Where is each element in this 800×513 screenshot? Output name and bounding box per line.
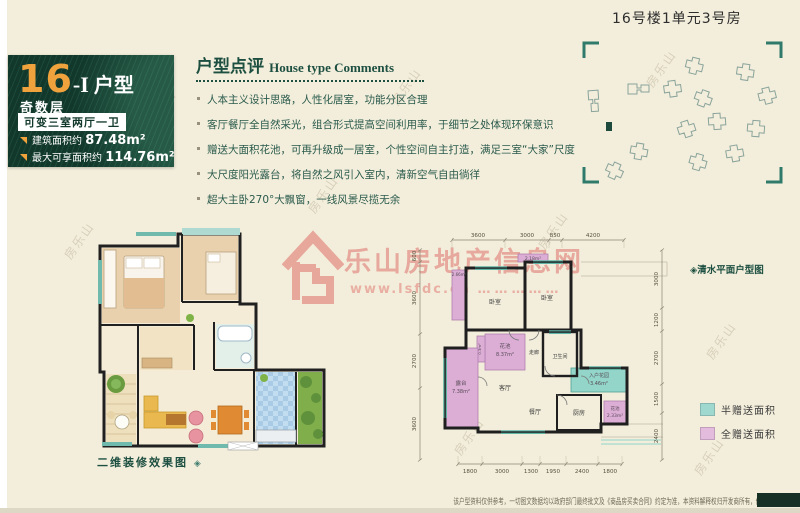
flower-large-name: 花池 [499,342,511,350]
comments-title-cn: 户型点评 [196,57,264,77]
comments-list: 人本主义设计思路，人性化居室，功能分区合理 客厅餐厅全自然采光，组合形式提高空间… [196,92,541,207]
crop-corner-brackets [584,43,781,182]
triangle-bullet-icon [20,137,27,144]
footer-brand-block [757,493,800,507]
built-area-line: 建筑面积约 87.48m² [20,132,146,148]
comments-title-en: House type Comments [269,60,394,75]
dim-bottom: 1950 [546,469,561,475]
dim-left: 2700 [412,353,418,368]
entry-garden-area: 3.46m² [590,381,608,387]
dim-bottom: 2400 [575,469,590,475]
dim-top: 4200 [586,233,601,239]
neighbor-window-band [601,440,661,444]
decor-floor-plan [78,226,338,452]
unit-suffix: -I [73,72,89,97]
built-area-label: 建筑面积约 [32,136,82,147]
full-gift-swatch [700,427,715,440]
bedroom1-label: 卧室 [489,298,501,306]
half-gift-swatch [700,403,715,416]
highlighted-building [606,122,612,131]
comment-item: 大尺度阳光露台，将自然之风引入室内，清新空气自由徜徉 [196,167,541,182]
decor-caption-text: 二维装修效果图 [97,456,188,469]
unit-type-word: 户型 [94,73,134,97]
dim-bottom: 1800 [463,469,478,475]
max-area-label: 最大可享面积约 [32,153,102,164]
measured-floor-plan: 卧室 卧室 客厅 餐厅 卫生间 走廊 厨房 花池 8.37m² 露台 7.38m… [405,218,670,494]
tile-watermark: 房乐山 [702,318,740,362]
dim-bottom: 3000 [495,469,510,475]
strip-tiny-area: 0.3m² [477,343,482,355]
living-label: 客厅 [499,384,511,392]
unit-number: 16 [18,57,73,101]
dim-left: 3600 [412,290,418,305]
dim-left: 3600 [412,416,418,431]
dim-bottom: 1300 [524,469,539,475]
dim-bottom: 1800 [603,469,618,475]
decor-balcony-band [182,228,240,235]
bedroom2-label: 卧室 [541,294,553,302]
decor-plan-caption: 二维装修效果图 ◈ [97,454,203,470]
dim-right: 3000 [654,271,660,286]
footer-disclaimer: 该户型资料仅供参考，一切图文数据均以政府部门最终批文及《商品房买卖合同》约定为准… [453,496,753,507]
site-plan-buildings [588,56,777,182]
full-gift-areas [445,254,627,428]
dining-label: 餐厅 [529,408,541,416]
entry-garden-name: 入户花园 [589,372,609,379]
flower-large-area: 8.37m² [496,352,514,358]
bare-plan-note: ◈清水平面户型图 [690,262,764,276]
comments-title: 户型点评 House type Comments [196,52,424,82]
dim-top: 3000 [520,233,535,239]
flyer-page: 房乐山 房乐山 房乐山 房乐山 房乐山 房乐山 房乐山 房乐山 房乐山 房乐山 … [0,0,800,513]
terrace-name: 露台 [455,379,467,387]
flower-small-area: 2.33m² [607,413,623,419]
dim-left: 600 [412,250,418,261]
dim-right: 1200 [654,312,660,327]
half-gift-entry-garden [571,368,627,392]
comment-item: 赠送大面积花池，可再升级成一居室，个性空间自主打造，满足三室“大家”尺度 [196,142,541,157]
legend-row-half: 半赠送面积 [700,402,776,417]
terrace-area: 7.38m² [452,389,470,395]
strip-left-area: 2.66m² [452,272,467,277]
kitchen-label: 厨房 [573,409,585,417]
house-type-comments: 户型点评 House type Comments 人本主义设计思路，人性化居室，… [196,52,541,217]
comment-item: 超大主卧270°大飘窗，一线风景尽揽无余 [196,192,541,207]
flower-small-name: 花池 [611,405,620,412]
dim-top: 3600 [471,233,486,239]
dim-right: 2400 [654,428,660,443]
page-edge-left [0,0,7,513]
unit-variant-label: 可变三室两厅一卫 [18,113,126,131]
legend-row-full: 全赠送面积 [700,426,776,441]
unit-info-panel: 16-I 户型 奇数层 可变三室两厅一卫 建筑面积约 87.48m² 最大可享面… [8,55,174,167]
max-area-value: 114.76m² [105,150,174,165]
triangle-bullet-icon [20,154,27,161]
half-gift-label: 半赠送面积 [721,402,776,417]
max-area-line: 最大可享面积约 114.76m² [20,149,175,165]
dim-right: 2700 [654,350,660,365]
comment-item: 客厅餐厅全自然采光，组合形式提高空间利用率，于细节之处体现环保意识 [196,117,541,132]
dim-top: 850 [550,233,561,239]
built-area-value: 87.48m² [85,133,145,148]
comment-item: 人本主义设计思路，人性化居室，功能分区合理 [196,92,541,107]
gift-area-legend: 半赠送面积 全赠送面积 [700,402,776,450]
corridor-label: 走廊 [529,349,539,356]
unit-title: 16-I 户型 [18,57,134,101]
strip-top-area: 2.18m² [525,256,541,262]
bathroom-label: 卫生间 [552,353,567,360]
site-plan-map [570,30,795,195]
building-location-title: 16号楼1单元3号房 [612,8,742,28]
page-edge-bottom [0,508,800,513]
full-gift-label: 全赠送面积 [721,426,776,441]
dim-right: 1500 [654,391,660,406]
diamond-icon: ◈ [194,459,203,469]
